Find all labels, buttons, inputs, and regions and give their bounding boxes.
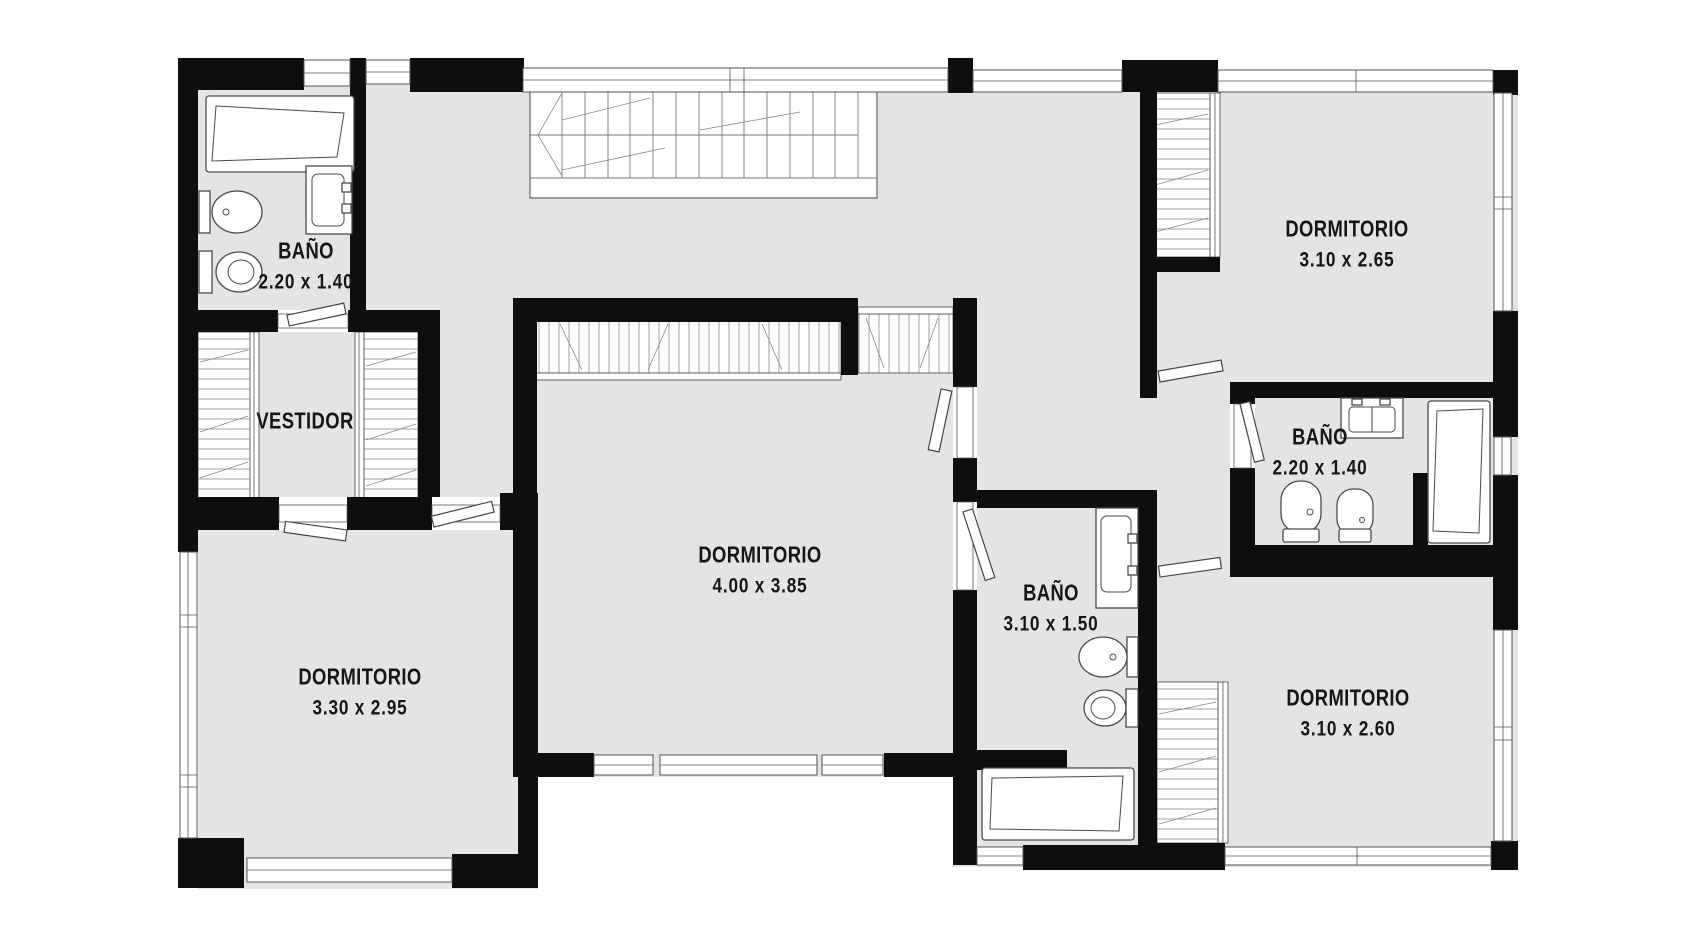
toilet-center-bath [1079,637,1138,677]
sink-vanity-center-bath [1096,508,1138,608]
room-name: DORMITORIO [1286,686,1409,709]
wardrobe-vestidor-right [355,332,418,498]
room-name: BAÑO [1004,581,1099,604]
floor-plan-drawing [0,0,1689,950]
label-dormitorio-bottom-right: DORMITORIO 3.10 x 2.60 [1286,686,1409,740]
closet-bottom-right-bedroom [1157,682,1228,843]
room-dims: 3.10 x 2.65 [1285,249,1408,271]
room-name: BAÑO [259,239,354,262]
label-bano-right: BAÑO 2.20 x 1.40 [1273,425,1368,479]
label-vestidor: VESTIDOR [256,410,353,433]
label-bano-top-left: BAÑO 2.20 x 1.40 [259,239,354,293]
room-dims: 4.00 x 3.85 [698,575,821,597]
bidet-top-left [199,251,262,293]
label-bano-center: BAÑO 3.10 x 1.50 [1004,581,1099,635]
label-dormitorio-top-right: DORMITORIO 3.10 x 2.65 [1285,217,1408,271]
bathtub-right-bath [1428,401,1490,543]
sink-vanity-top-left [306,166,352,234]
bathtub-center-bath [982,768,1134,840]
staircase [530,90,877,198]
room-dims: 3.10 x 1.50 [1004,613,1099,635]
room-dims: 3.10 x 2.60 [1286,718,1409,740]
room-name: DORMITORIO [698,543,821,566]
room-name: VESTIDOR [256,410,353,433]
room-name: DORMITORIO [1285,217,1408,240]
bidet-center-bath [1084,689,1138,727]
room-name: DORMITORIO [298,665,421,688]
room-dims: 3.30 x 2.95 [298,697,421,719]
label-dormitorio-center: DORMITORIO 4.00 x 3.85 [698,543,821,597]
room-dims: 2.20 x 1.40 [1273,457,1368,479]
wardrobe-center-bedroom [535,320,841,380]
toilet-right-bath [1281,481,1321,542]
bidet-right-bath [1337,489,1373,542]
wardrobe-vestidor-left [198,332,259,498]
closet-top-right-bedroom [1153,93,1220,257]
label-dormitorio-bottom-left: DORMITORIO 3.30 x 2.95 [298,665,421,719]
toilet-top-left [199,191,262,233]
floor-plan-canvas: BAÑO 2.20 x 1.40 VESTIDOR DORMITORIO 3.3… [0,0,1689,950]
bathtub-top-left [206,96,354,172]
room-dims: 2.20 x 1.40 [259,271,354,293]
closet-hall [858,307,953,373]
room-name: BAÑO [1273,425,1368,448]
